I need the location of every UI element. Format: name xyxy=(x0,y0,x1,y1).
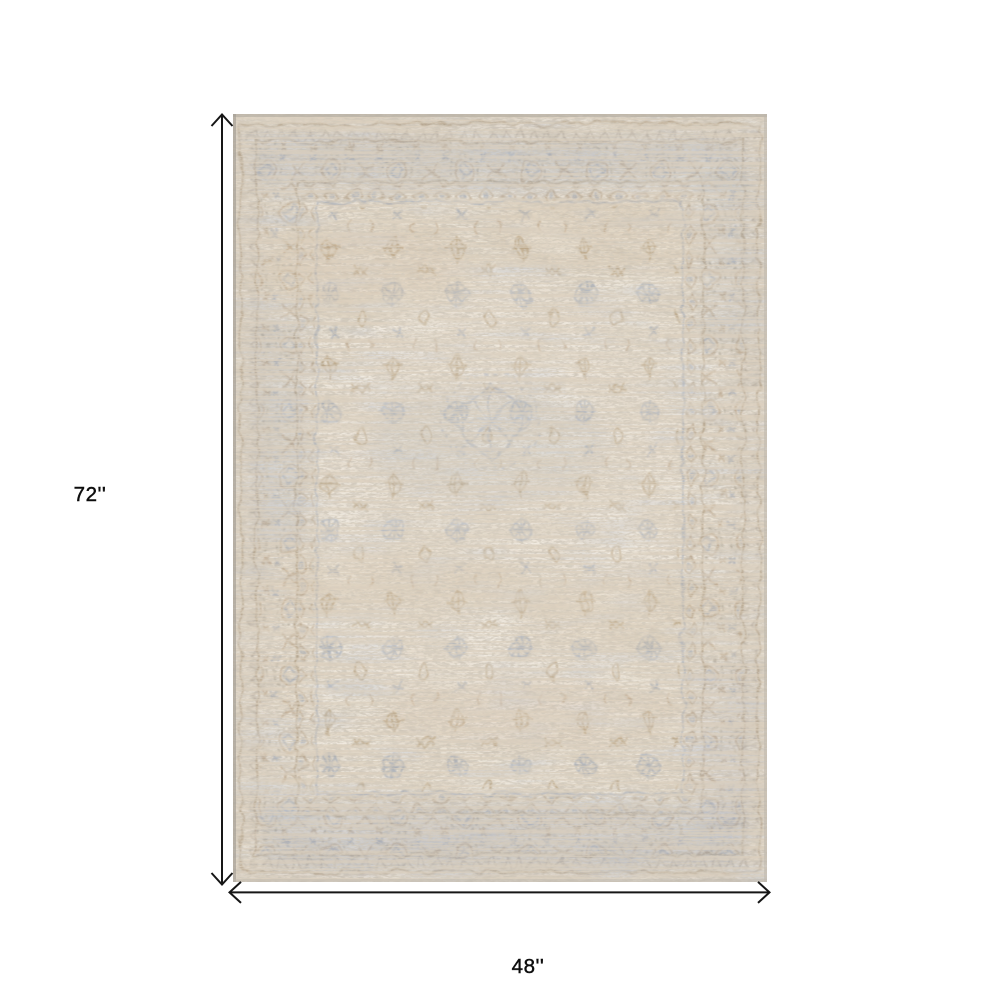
svg-text:48'': 48'' xyxy=(512,955,545,978)
svg-text:72'': 72'' xyxy=(74,483,107,506)
